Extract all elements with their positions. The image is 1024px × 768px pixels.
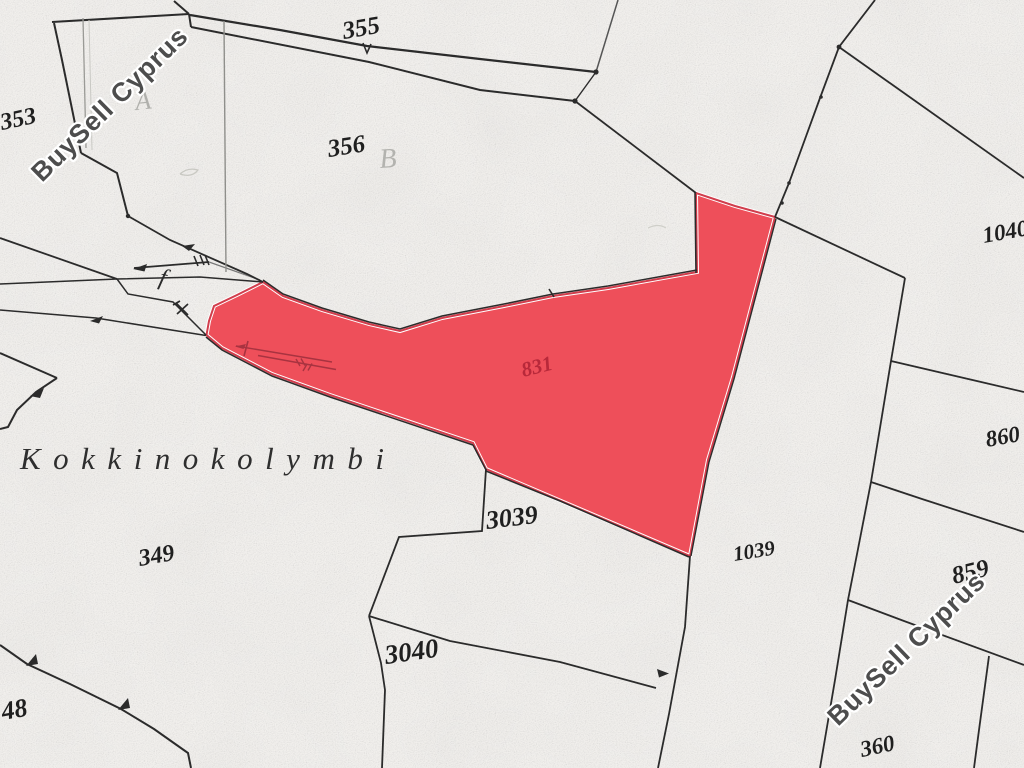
svg-text:48: 48 [0,693,30,726]
svg-text:Kokkinokolymbi: Kokkinokolymbi [19,441,396,476]
svg-text:B: B [378,143,397,175]
